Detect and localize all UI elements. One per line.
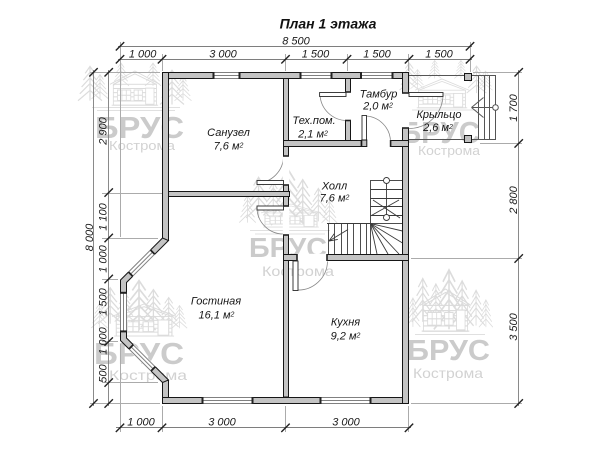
svg-text:3 000: 3 000 [209, 49, 237, 61]
svg-text:1 000: 1 000 [129, 49, 157, 61]
svg-text:1 000: 1 000 [98, 244, 110, 272]
svg-text:1 100: 1 100 [98, 202, 110, 230]
svg-text:8 000: 8 000 [84, 223, 96, 251]
svg-text:7,6 м2: 7,6 м2 [320, 193, 350, 205]
svg-text:Санузел: Санузел [207, 127, 250, 139]
svg-text:Кострома: Кострома [413, 365, 483, 381]
svg-text:500: 500 [98, 363, 110, 382]
svg-text:9,2 м2: 9,2 м2 [331, 331, 361, 343]
svg-text:3 500: 3 500 [508, 312, 520, 340]
svg-text:7,6 м2: 7,6 м2 [214, 141, 244, 153]
svg-text:2,6 м2: 2,6 м2 [422, 122, 453, 134]
svg-text:8 500: 8 500 [282, 35, 310, 47]
svg-text:Холл: Холл [321, 181, 347, 193]
svg-text:1 500: 1 500 [363, 49, 391, 61]
svg-text:Тамбур: Тамбур [360, 89, 398, 101]
svg-text:3 000: 3 000 [332, 417, 360, 429]
svg-text:Крыльцо: Крыльцо [416, 109, 461, 121]
svg-text:1 500: 1 500 [98, 287, 110, 315]
svg-text:2 800: 2 800 [508, 185, 520, 214]
svg-text:2,1 м2: 2,1 м2 [297, 129, 328, 141]
svg-text:БРУС: БРУС [407, 335, 490, 367]
svg-text:1 000: 1 000 [127, 417, 155, 429]
svg-text:1 000: 1 000 [98, 326, 110, 354]
svg-text:1 500: 1 500 [302, 49, 330, 61]
svg-text:16,1 м2: 16,1 м2 [199, 310, 235, 322]
svg-text:3 000: 3 000 [208, 417, 236, 429]
svg-text:Гостиная: Гостиная [191, 296, 241, 308]
svg-text:1 500: 1 500 [425, 49, 453, 61]
svg-text:2 900: 2 900 [98, 116, 110, 145]
svg-text:Кухня: Кухня [331, 317, 360, 329]
svg-text:Кострома: Кострома [418, 144, 480, 158]
svg-text:План 1 этажа: План 1 этажа [280, 16, 377, 32]
svg-text:Тех.пом.: Тех.пом. [292, 115, 335, 127]
svg-text:2,0 м2: 2,0 м2 [362, 101, 393, 113]
svg-text:1 700: 1 700 [508, 93, 520, 121]
